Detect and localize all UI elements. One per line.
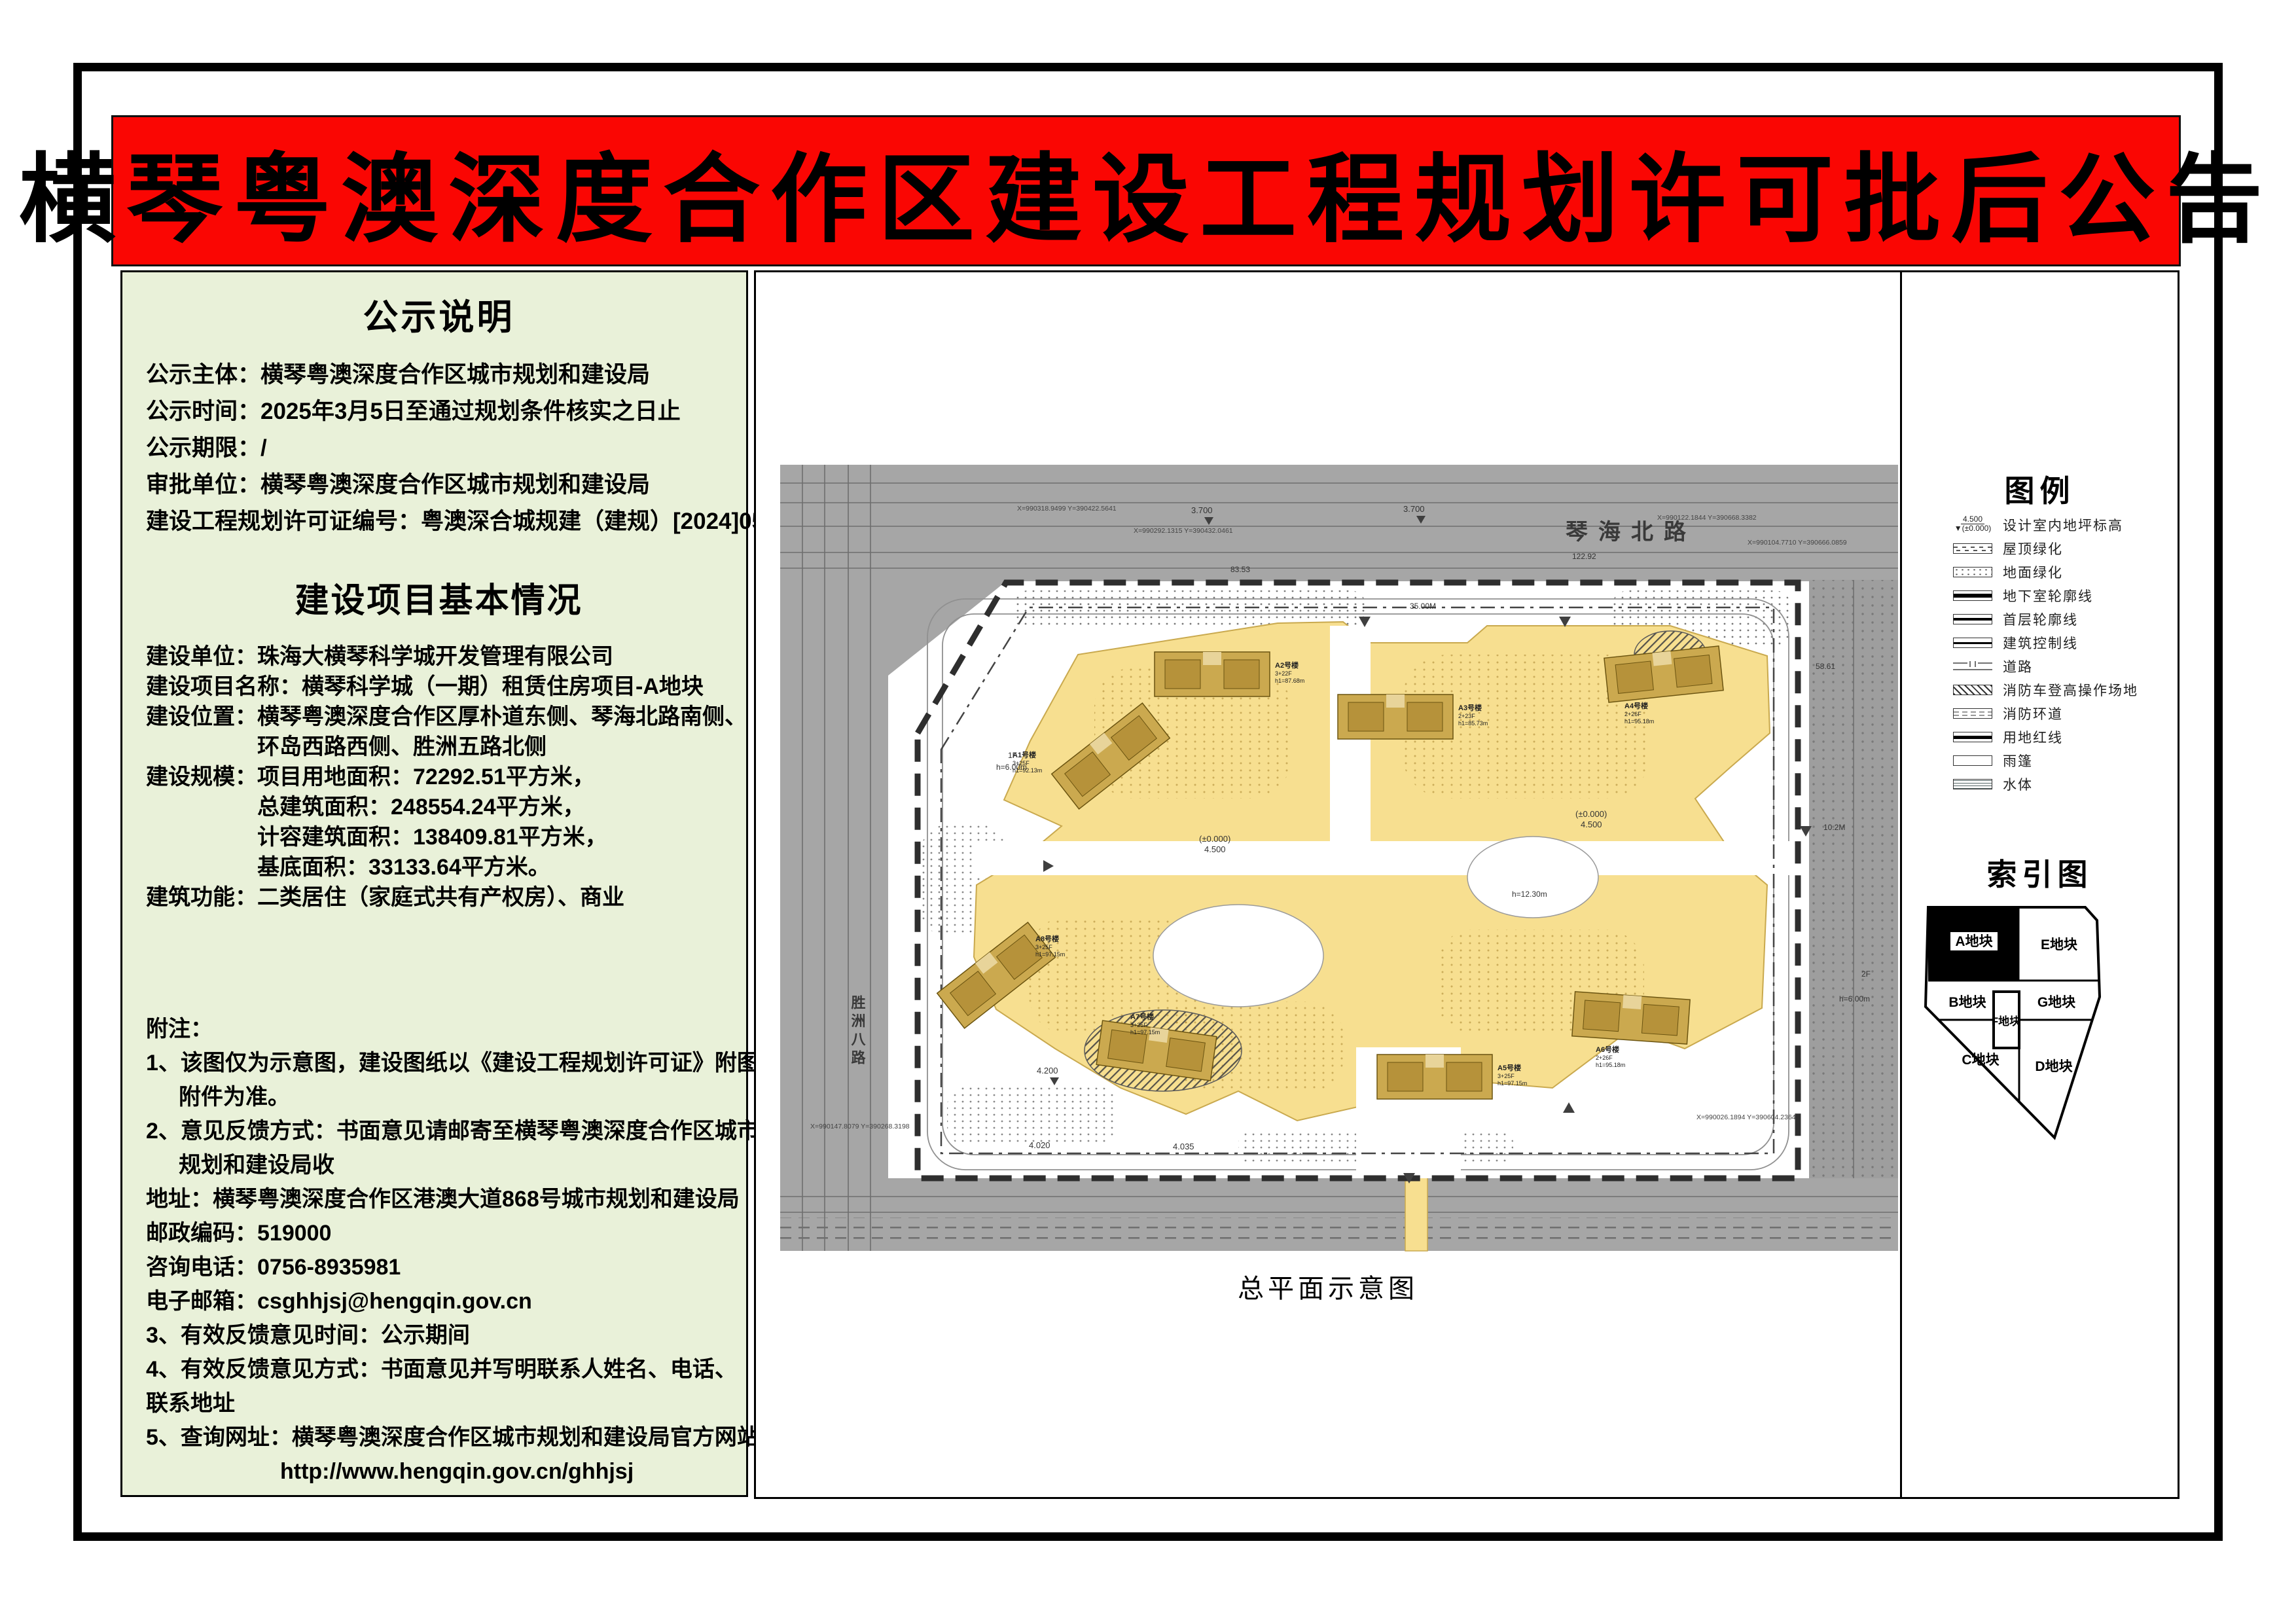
plot-label: G地块 [2037,994,2076,1010]
svg-text:X=990318.9499 Y=390422.5641: X=990318.9499 Y=390422.5641 [1017,505,1117,513]
road-label-west: 胜洲八路 [850,995,866,1068]
basement-outline-icon [1953,590,1992,601]
svg-text:3+25F: 3+25F [1130,1022,1147,1028]
remark-line: 邮政编码：519000 [146,1216,732,1250]
remark-line: 附注： [146,1012,732,1046]
legend-item: 水体 [1953,772,2138,796]
svg-text:3+25F: 3+25F [1498,1073,1515,1079]
svg-text:10.2M: 10.2M [1823,823,1845,832]
svg-text:X=990147.8079 Y=390268.3198: X=990147.8079 Y=390268.3198 [810,1123,910,1130]
svg-text:h1=85.73m: h1=85.73m [1458,720,1488,727]
info-panel: 公示说明 公示主体：横琴粤澳深度合作区城市规划和建设局 公示时间：2025年3月… [120,270,748,1497]
plot-label: A地块 [1955,933,1993,949]
svg-text:3.700: 3.700 [1403,504,1425,514]
svg-text:(±0.000): (±0.000) [1199,834,1230,844]
svg-text:X=990104.7710 Y=390666.0859: X=990104.7710 Y=390666.0859 [1748,539,1847,547]
project-line: 环岛西路西侧、胜洲五路北侧 [146,732,732,762]
remark-url: http://www.hengqin.gov.cn/ghhjsj [146,1454,732,1489]
svg-text:4.035: 4.035 [1173,1142,1194,1151]
remark-line: 咨询电话：0756-8935981 [146,1250,732,1284]
building-control-line-icon [1953,638,1992,648]
legend: 4.500 ▼(±0.000) 设计室内地坪标高 屋顶绿化 地面绿化 地下室轮廓… [1953,513,2138,796]
project-line: 计容建筑面积：138409.81平方米， [146,822,732,852]
plot-label: B地块 [1948,994,1986,1010]
svg-text:3+22F: 3+22F [1275,670,1292,677]
plot-label: F地块 [1992,1015,2021,1028]
remark-line: 联系地址 [146,1386,732,1420]
svg-text:2+26F: 2+26F [1596,1055,1613,1061]
svg-text:A2号楼: A2号楼 [1275,660,1299,670]
right-panel: 图例 4.500 ▼(±0.000) 设计室内地坪标高 屋顶绿化 地面绿化 地下… [1902,272,2178,1497]
svg-text:h1=97.15m: h1=97.15m [1498,1080,1527,1087]
svg-text:h1=95.18m: h1=95.18m [1624,718,1654,725]
fire-lane-icon [1953,708,1992,719]
remark-line: 电子邮箱：csghhjsj@hengqin.gov.cn [146,1284,732,1318]
elevation-mark-icon: 4.500 ▼(±0.000) [1953,515,1992,535]
svg-text:h1=95.18m: h1=95.18m [1596,1062,1625,1068]
svg-text:h1=97.15m: h1=97.15m [1130,1029,1160,1036]
remark-line: 地址：横琴粤澳深度合作区港澳大道868号城市规划和建设局 [146,1182,732,1216]
legend-item: 用地红线 [1953,725,2138,749]
legend-title: 图例 [1902,467,2178,511]
red-line-icon [1953,732,1992,742]
notice-line: 公示主体：横琴粤澳深度合作区城市规划和建设局 [146,357,732,393]
map-caption: 总平面示意图 [756,1267,1900,1305]
svg-text:4.200: 4.200 [1037,1066,1058,1075]
svg-text:2+23F: 2+23F [1458,713,1475,719]
remark-line: 1、该图仅为示意图，建设图纸以《建设工程规划许可证》附图 [146,1046,732,1080]
ground-floor-outline-icon [1953,614,1992,624]
project-line: 基底面积：33133.64平方米。 [146,852,732,882]
remark-line: 规划和建设局收 [146,1148,732,1182]
index-map: A地块 E地块 B地块 G地块 F地块 C地块 D地块 [1920,889,2159,1166]
svg-text:h=12.30m: h=12.30m [1512,890,1547,899]
svg-text:3.700: 3.700 [1191,505,1213,515]
svg-text:h=6.00m: h=6.00m [1839,994,1870,1003]
ground-greening-icon [1953,567,1992,577]
svg-text:2+26F: 2+26F [1624,711,1641,717]
south-road-texture [780,1218,1898,1246]
notice-line: 审批单位：横琴粤澳深度合作区城市规划和建设局 [146,467,732,503]
project-line: 建设规模：项目用地面积：72292.51平方米， [146,762,732,792]
svg-text:h=6.00m: h=6.00m [996,763,1027,772]
site-plan-panel: A1号楼 3+25F h1=92.13m A2号楼 3+22F h1=87.68… [756,272,1902,1497]
water-body-icon [1953,779,1992,789]
legend-item: 建筑控制线 [1953,631,2138,655]
svg-text:A8号楼: A8号楼 [1035,934,1059,943]
legend-item: 消防车登高操作场地 [1953,678,2138,702]
notice-line: 公示时间：2025年3月5日至通过规划条件核实之日止 [146,393,732,430]
banner: 横琴粤澳深度合作区建设工程规划许可批后公告 [111,115,2181,266]
svg-text:X=990292.1315 Y=390432.0461: X=990292.1315 Y=390432.0461 [1134,527,1233,535]
legend-item: 首层轮廓线 [1953,607,2138,631]
roof-greening-icon [1953,543,1992,554]
svg-text:A6号楼: A6号楼 [1596,1045,1619,1054]
svg-text:58.61: 58.61 [1816,662,1835,671]
fire-truck-area-icon [1953,685,1992,695]
road-label-north: 琴海北路 [1566,520,1696,545]
svg-text:3+25F: 3+25F [1035,944,1052,950]
svg-text:35.00M: 35.00M [1410,602,1436,611]
index-map-title: 索引图 [1902,851,2178,894]
svg-text:A7号楼: A7号楼 [1130,1012,1154,1021]
legend-item: 4.500 ▼(±0.000) 设计室内地坪标高 [1953,513,2138,537]
legend-item: 雨篷 [1953,749,2138,772]
project-line: 总建筑面积：248554.24平方米， [146,792,732,822]
remark-line: 3、有效反馈意见时间：公示期间 [146,1318,732,1352]
svg-text:4.020: 4.020 [1029,1140,1050,1150]
svg-text:83.53: 83.53 [1230,565,1250,574]
legend-item: 道路 [1953,655,2138,678]
remark-line: 附件为准。 [146,1080,732,1114]
svg-text:X=990026.1894 Y=390604.2364: X=990026.1894 Y=390604.2364 [1696,1113,1796,1121]
project-line: 建设项目名称：横琴科学城（一期）租赁住房项目-A地块 [146,672,732,702]
road-icon [1953,661,1992,672]
svg-text:X=990122.1844 Y=390668.3382: X=990122.1844 Y=390668.3382 [1657,514,1757,522]
plot-label: E地块 [2041,937,2078,952]
svg-text:(±0.000): (±0.000) [1575,809,1607,819]
plot-label: D地块 [2035,1058,2073,1074]
svg-text:A3号楼: A3号楼 [1458,703,1482,712]
legend-item: 地面绿化 [1953,560,2138,584]
remark-line: 2、意见反馈方式：书面意见请邮寄至横琴粤澳深度合作区城市 [146,1114,732,1148]
remark-line: 5、查询网址：横琴粤澳深度合作区城市规划和建设局官方网站 [146,1420,732,1454]
project-line: 建设位置：横琴粤澳深度合作区厚朴道东侧、琴海北路南侧、 [146,702,732,732]
svg-text:A5号楼: A5号楼 [1498,1063,1521,1072]
content-box: A1号楼 3+25F h1=92.13m A2号楼 3+22F h1=87.68… [754,270,2179,1499]
legend-item: 消防环道 [1953,702,2138,725]
svg-text:2F: 2F [1861,969,1871,979]
project-line: 建筑功能：二类居住（家庭式共有产权房）、商业 [146,882,732,912]
svg-text:4.500: 4.500 [1204,844,1226,854]
canopy-icon [1953,755,1992,766]
remark-line: 4、有效反馈意见方式：书面意见并写明联系人姓名、电话、 [146,1352,732,1386]
notice-line: 建设工程规划许可证编号：粤澳深合城规建（建规）[2024]054号 [146,503,732,540]
notice-title: 公示说明 [146,288,732,340]
project-line: 建设单位：珠海大横琴科学城开发管理有限公司 [146,641,732,672]
plot-label: C地块 [1962,1052,2000,1068]
svg-text:A4号楼: A4号楼 [1624,701,1648,710]
notice-line: 公示期限：/ [146,430,732,467]
project-title: 建设项目基本情况 [146,573,732,622]
legend-item: 屋顶绿化 [1953,537,2138,560]
svg-text:h1=97.15m: h1=97.15m [1035,951,1065,958]
site-plan: A1号楼 3+25F h1=92.13m A2号楼 3+22F h1=87.68… [780,458,1898,1254]
svg-text:4.500: 4.500 [1581,820,1602,829]
svg-text:1F: 1F [1008,751,1017,760]
legend-item: 地下室轮廓线 [1953,584,2138,607]
svg-text:h1=87.68m: h1=87.68m [1275,677,1304,684]
page-title: 横琴粤澳深度合作区建设工程规划许可批后公告 [19,120,2273,261]
svg-text:122.92: 122.92 [1572,552,1596,561]
